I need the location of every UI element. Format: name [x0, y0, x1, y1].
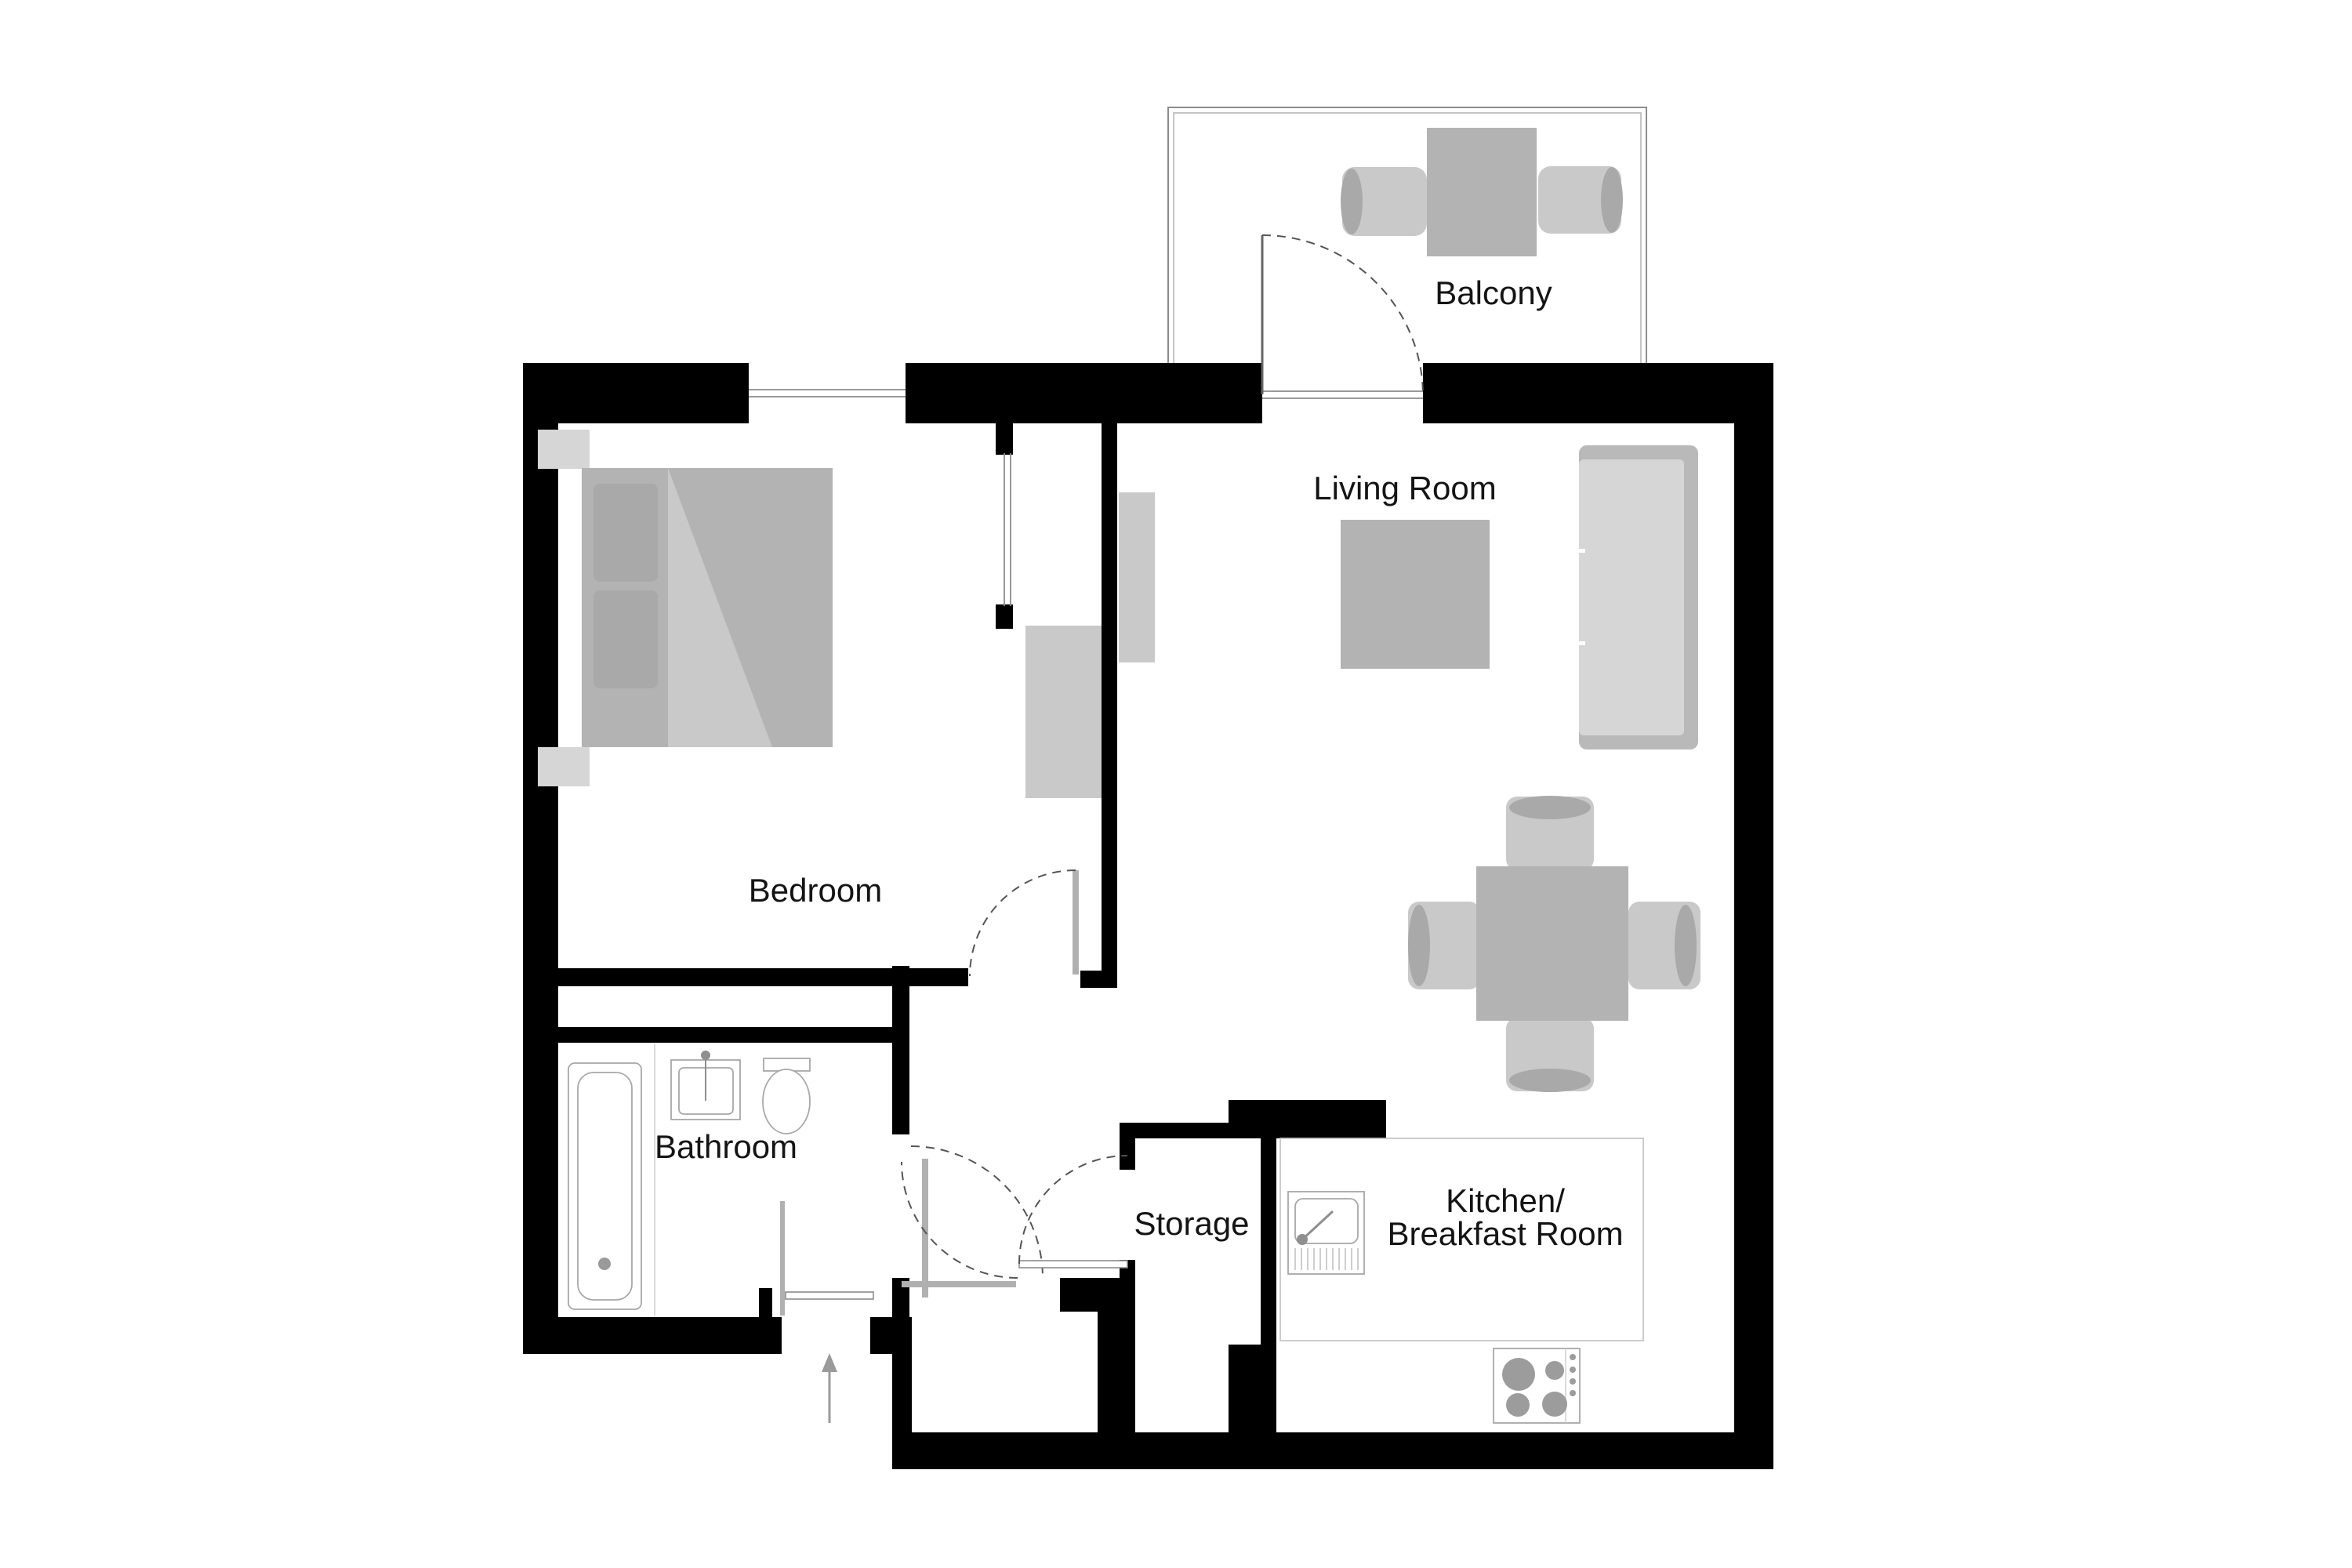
balcony-chair-cap-icon	[1341, 169, 1363, 234]
wall-bottom	[892, 1432, 1773, 1469]
balcony-furniture	[1341, 128, 1623, 256]
nightstand-icon	[538, 430, 590, 469]
wall-bedroom-door-jamb	[1080, 971, 1117, 988]
storage-label: Storage	[1134, 1205, 1249, 1242]
burner-icon	[1506, 1393, 1530, 1417]
wall-left	[523, 423, 558, 1354]
wall-closet-stub-bottom	[996, 604, 1013, 629]
wall-bathroom-right-upper	[892, 966, 909, 1134]
door-leaf-icon	[1019, 1261, 1127, 1268]
coffee-table-icon	[1341, 520, 1490, 669]
door-swing-icon	[902, 1162, 1018, 1278]
dining-chair-cap-icon	[1509, 796, 1591, 819]
bedroom-label: Bedroom	[749, 872, 882, 909]
balcony-wall-inner	[1174, 113, 1641, 368]
pillow-icon	[593, 484, 658, 582]
burner-icon	[1545, 1361, 1564, 1380]
sofa-cushion-gap	[1577, 549, 1585, 553]
wall-right	[1734, 363, 1773, 1469]
bathroom-label: Bathroom	[655, 1128, 797, 1165]
dining-chair-cap-icon	[1675, 905, 1697, 986]
balcony-chair-cap-icon	[1601, 167, 1623, 233]
wall-top-left	[523, 363, 749, 423]
wall-top-middle	[906, 363, 1262, 423]
wall-storage-top	[1120, 1123, 1231, 1138]
balcony-table-icon	[1427, 128, 1537, 256]
wall-bathroom-top	[558, 1027, 892, 1043]
wall-storage-right-block	[1229, 1345, 1276, 1432]
bedroom-furniture	[538, 430, 1102, 798]
wall-storage-step	[1060, 1278, 1135, 1312]
dining-table-icon	[1476, 866, 1628, 1021]
wall-top-right	[1423, 363, 1773, 423]
sofa-cushion-gap	[1577, 641, 1585, 645]
pillow-icon	[593, 590, 658, 688]
balcony-label: Balcony	[1435, 274, 1552, 311]
wall-storage-left-lower	[1098, 1312, 1135, 1432]
door-swing-icon	[970, 870, 1076, 976]
wall-closet-stub-top	[996, 423, 1013, 455]
wall-entry-slab	[892, 1354, 912, 1435]
door-leaf-icon	[786, 1292, 873, 1299]
wall-bathroom-bottom	[523, 1317, 782, 1354]
stove-knob-icon	[1570, 1378, 1576, 1385]
stove-icon	[1494, 1348, 1580, 1423]
kitchen-fixtures	[1280, 1138, 1643, 1423]
wall-entry-right	[870, 1317, 912, 1354]
bedroom-window-gap	[749, 363, 906, 423]
wall-storage-top-block	[1229, 1100, 1386, 1138]
stove-knob-icon	[1570, 1354, 1576, 1360]
wall-entry-jamb	[759, 1288, 772, 1317]
door-swing-icon	[1019, 1156, 1127, 1264]
balcony-outline	[1168, 107, 1646, 368]
entrance-arrow-head-icon	[822, 1353, 837, 1372]
door-swing-icon	[911, 1146, 1043, 1278]
wall-bedroom-livingroom	[1102, 423, 1117, 972]
floor-plan-canvas: Bedroom Bathroom Storage Living Room Bal…	[0, 0, 2352, 1568]
bathroom-fixtures	[568, 1044, 810, 1316]
toilet-icon	[763, 1069, 810, 1134]
wall-storage-door-jamb-top	[1120, 1123, 1135, 1170]
stove-knob-icon	[1570, 1367, 1576, 1373]
sofa-seat-icon	[1579, 459, 1684, 735]
tv-sideboard-icon	[1119, 492, 1155, 662]
balcony-wall-outer	[1168, 107, 1646, 368]
living-room-furniture	[1119, 445, 1700, 1092]
burner-icon	[1502, 1358, 1535, 1391]
balcony-door-gap	[1262, 363, 1423, 423]
nightstand-icon	[538, 747, 590, 786]
dining-chair-cap-icon	[1408, 905, 1430, 986]
stove-knob-icon	[1570, 1390, 1576, 1396]
kitchen-label-line1: Kitchen/	[1446, 1182, 1565, 1219]
wall-storage-right	[1261, 1138, 1276, 1345]
bathtub-drain-icon	[598, 1258, 611, 1270]
kitchen-label-line2: Breakfast Room	[1387, 1215, 1623, 1252]
burner-icon	[1542, 1392, 1567, 1417]
wardrobe-icon	[1025, 626, 1102, 798]
dining-chair-cap-icon	[1509, 1069, 1591, 1092]
living-room-label: Living Room	[1313, 470, 1496, 506]
